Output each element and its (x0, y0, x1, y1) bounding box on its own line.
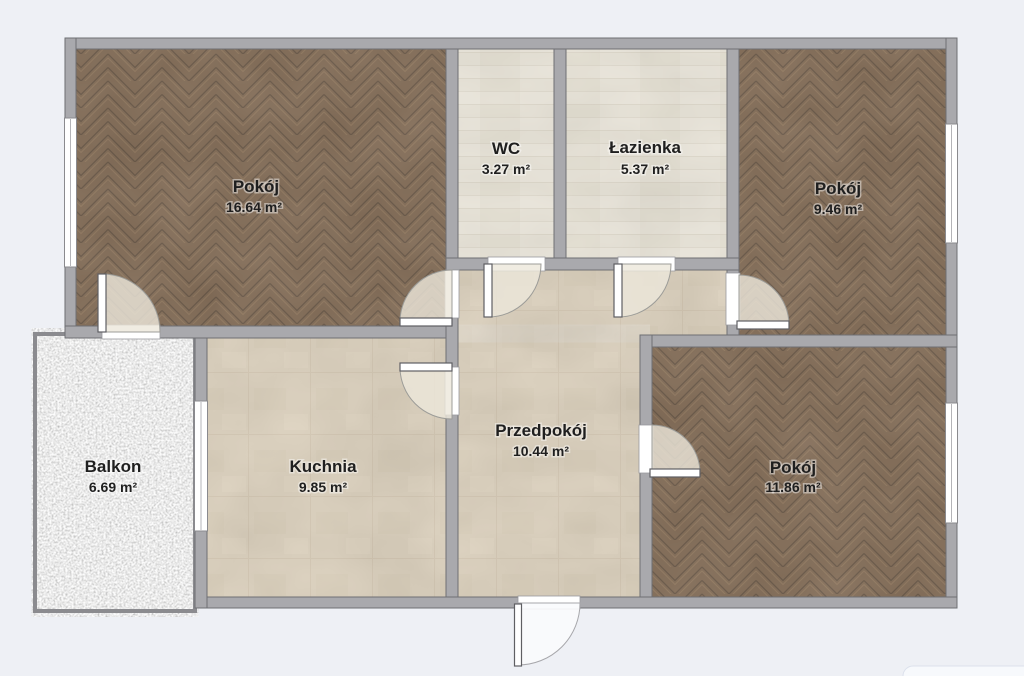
window-room-br-right (946, 403, 958, 523)
label-room-tl-name: Pokój (233, 177, 279, 196)
wall-wc-bathroom (554, 49, 566, 270)
overlay-card-corner (903, 666, 1024, 676)
floor-plan-page: Pokój 16.64 m² WC 3.27 m² Łazienka 5.37 … (0, 0, 1024, 676)
label-wc-area: 3.27 m² (482, 161, 531, 177)
label-hallway-name: Przedpokój (495, 421, 587, 440)
window-kitchen-balcony (195, 401, 208, 531)
opening-room-tr (726, 273, 740, 325)
label-room-tl-area: 16.64 m² (226, 199, 282, 215)
floor-plan-canvas: Pokój 16.64 m² WC 3.27 m² Łazienka 5.37 … (0, 0, 1024, 676)
window-room-tl-left (65, 118, 77, 267)
wall-exterior-top (65, 38, 957, 49)
label-balcony-name: Balkon (85, 457, 142, 476)
label-room-tr-name: Pokój (815, 179, 861, 198)
label-bathroom-name: Łazienka (609, 138, 681, 157)
label-room-br-area: 11.86 m² (765, 479, 821, 495)
label-bathroom-area: 5.37 m² (621, 161, 670, 177)
label-room-tr-area: 9.46 m² (814, 201, 863, 217)
label-balcony-area: 6.69 m² (89, 479, 138, 495)
label-room-br-name: Pokój (770, 458, 816, 477)
opening-room-br (639, 425, 653, 473)
window-room-tr-right (946, 124, 958, 243)
wall-rooms-right-divider (640, 335, 957, 347)
label-hallway-area: 10.44 m² (513, 443, 569, 459)
label-kitchen-area: 9.85 m² (299, 479, 348, 495)
floor-texture-overlay (452, 330, 646, 601)
label-wc-name: WC (492, 139, 520, 158)
label-kitchen-name: Kuchnia (289, 457, 357, 476)
